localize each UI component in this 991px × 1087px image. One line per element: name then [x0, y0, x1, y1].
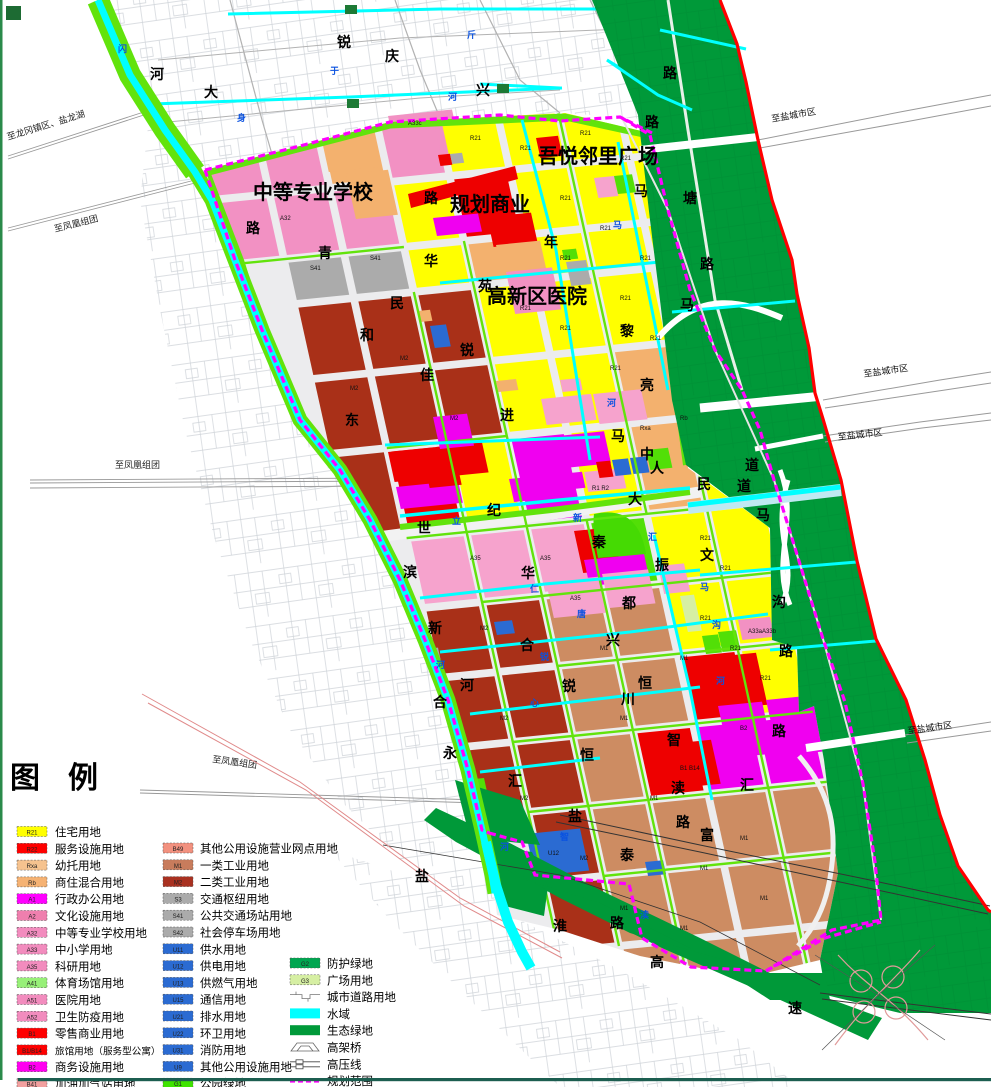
- svg-text:黎: 黎: [620, 323, 634, 339]
- svg-text:A33aA33b: A33aA33b: [748, 629, 777, 635]
- svg-text:年: 年: [544, 234, 558, 250]
- svg-text:B1 B14: B1 B14: [680, 766, 700, 772]
- svg-text:U21: U21: [172, 1015, 184, 1021]
- svg-text:富: 富: [700, 827, 714, 843]
- svg-text:G3: G3: [301, 979, 310, 985]
- svg-text:M1: M1: [700, 866, 709, 872]
- svg-text:河: 河: [716, 675, 725, 686]
- svg-text:B2: B2: [28, 1066, 36, 1072]
- svg-text:至凤凰组团: 至凤凰组团: [115, 459, 160, 470]
- svg-text:R21: R21: [560, 196, 572, 202]
- svg-text:进: 进: [500, 407, 514, 423]
- svg-text:规划商业: 规划商业: [450, 192, 530, 216]
- svg-text:路: 路: [700, 256, 715, 272]
- svg-text:M1: M1: [760, 896, 769, 902]
- svg-text:高架桥: 高架桥: [327, 1041, 362, 1055]
- svg-text:R21: R21: [620, 296, 632, 302]
- svg-text:M1: M1: [620, 716, 629, 722]
- svg-text:路: 路: [676, 814, 691, 830]
- svg-text:恒: 恒: [580, 747, 594, 763]
- svg-text:A33: A33: [27, 948, 38, 954]
- svg-text:S41: S41: [370, 256, 381, 262]
- svg-text:U9: U9: [174, 1065, 182, 1071]
- svg-text:心: 心: [530, 698, 539, 708]
- svg-text:斤: 斤: [467, 29, 476, 40]
- svg-text:河: 河: [607, 397, 616, 408]
- svg-text:M2: M2: [174, 881, 183, 887]
- svg-text:秦: 秦: [591, 534, 607, 550]
- svg-text:M1: M1: [620, 906, 629, 912]
- svg-text:供水用地: 供水用地: [200, 942, 246, 956]
- svg-text:汇: 汇: [508, 773, 522, 789]
- svg-text:川: 川: [620, 691, 635, 707]
- svg-text:速: 速: [788, 1000, 802, 1016]
- svg-text:其他公用设施营业网点用地: 其他公用设施营业网点用地: [200, 842, 338, 856]
- svg-text:住宅用地: 住宅用地: [55, 825, 101, 839]
- svg-text:渎: 渎: [640, 909, 649, 920]
- svg-text:华: 华: [521, 565, 535, 581]
- svg-text:M1: M1: [680, 656, 689, 662]
- svg-text:水域: 水域: [327, 1008, 350, 1021]
- svg-text:A32: A32: [27, 931, 38, 937]
- svg-text:亮: 亮: [640, 377, 654, 393]
- svg-text:M2: M2: [580, 856, 589, 862]
- svg-text:城市道路用地: 城市道路用地: [327, 990, 396, 1004]
- svg-text:医院用地: 医院用地: [55, 993, 101, 1007]
- svg-text:U15: U15: [172, 998, 184, 1004]
- svg-text:锐: 锐: [562, 678, 576, 694]
- svg-text:B49: B49: [173, 847, 184, 853]
- svg-text:A1: A1: [28, 898, 36, 904]
- svg-text:M1: M1: [600, 646, 609, 652]
- svg-text:文化设施用地: 文化设施用地: [55, 909, 124, 923]
- svg-text:商住混合用地: 商住混合用地: [55, 875, 124, 889]
- svg-text:M2: M2: [520, 796, 529, 802]
- svg-text:R21: R21: [520, 306, 532, 312]
- svg-text:中等专业学校: 中等专业学校: [253, 180, 374, 204]
- svg-text:R21: R21: [620, 156, 632, 162]
- svg-text:R1 R2: R1 R2: [592, 486, 610, 492]
- svg-text:汇: 汇: [740, 777, 754, 793]
- svg-text:A35: A35: [27, 965, 38, 971]
- svg-text:科研用地: 科研用地: [55, 959, 101, 973]
- svg-text:合: 合: [520, 637, 535, 653]
- svg-text:新: 新: [428, 620, 442, 636]
- svg-text:锐: 锐: [540, 651, 549, 662]
- svg-text:苑: 苑: [477, 278, 492, 294]
- svg-text:B1: B1: [28, 1032, 36, 1038]
- svg-text:S42: S42: [173, 931, 184, 937]
- svg-text:路: 路: [772, 723, 787, 739]
- svg-text:高新区医院: 高新区医院: [487, 284, 587, 308]
- svg-text:兴: 兴: [476, 82, 490, 98]
- svg-text:二类工业用地: 二类工业用地: [200, 875, 269, 889]
- svg-text:淮: 淮: [553, 918, 567, 934]
- svg-text:青: 青: [318, 245, 332, 261]
- svg-text:G2: G2: [301, 962, 310, 968]
- svg-text:R21: R21: [730, 646, 742, 652]
- svg-text:大: 大: [628, 491, 642, 507]
- svg-text:R21: R21: [640, 256, 652, 262]
- svg-text:沟: 沟: [712, 619, 721, 630]
- svg-text:旅馆用地（服务型公寓）: 旅馆用地（服务型公寓）: [55, 1045, 161, 1057]
- svg-text:智: 智: [666, 732, 681, 748]
- svg-text:通信用地: 通信用地: [200, 994, 246, 1007]
- svg-text:A35: A35: [540, 556, 551, 562]
- svg-text:渎: 渎: [671, 780, 685, 796]
- svg-text:华: 华: [424, 253, 438, 269]
- svg-text:于: 于: [330, 66, 339, 76]
- svg-text:供电用地: 供电用地: [200, 959, 246, 973]
- svg-text:中等专业学校用地: 中等专业学校用地: [55, 926, 147, 940]
- svg-text:高压线: 高压线: [327, 1057, 362, 1071]
- svg-text:交通枢纽用地: 交通枢纽用地: [200, 892, 269, 906]
- svg-text:行政办公用地: 行政办公用地: [55, 892, 124, 906]
- svg-text:Rxa: Rxa: [27, 864, 38, 870]
- svg-text:东: 东: [345, 412, 359, 428]
- svg-text:R21: R21: [560, 256, 572, 262]
- svg-text:汇: 汇: [648, 531, 657, 542]
- svg-text:R21: R21: [560, 326, 572, 332]
- svg-text:M1: M1: [680, 926, 689, 932]
- svg-text:A51: A51: [27, 999, 38, 1005]
- svg-text:广场用地: 广场用地: [327, 973, 373, 987]
- svg-text:M2: M2: [450, 416, 459, 422]
- svg-text:R21: R21: [26, 831, 38, 837]
- svg-text:路: 路: [779, 643, 794, 659]
- svg-text:庆: 庆: [385, 48, 399, 64]
- svg-text:Rb: Rb: [28, 881, 36, 887]
- svg-text:U12: U12: [172, 965, 184, 971]
- svg-text:唐: 唐: [577, 608, 586, 619]
- svg-text:M2: M2: [500, 716, 509, 722]
- svg-text:U22: U22: [172, 1032, 184, 1038]
- svg-text:锐: 锐: [460, 342, 474, 358]
- svg-text:供燃气用地: 供燃气用地: [200, 976, 258, 990]
- svg-text:恒: 恒: [638, 675, 652, 691]
- svg-text:其他公用设施用地: 其他公用设施用地: [200, 1061, 292, 1074]
- svg-text:A35: A35: [470, 556, 481, 562]
- svg-text:R21: R21: [760, 676, 772, 682]
- svg-text:G1: G1: [174, 1082, 183, 1087]
- svg-text:河: 河: [150, 66, 164, 82]
- svg-text:社会停车场用地: 社会停车场用地: [200, 926, 281, 940]
- svg-text:R22: R22: [26, 847, 38, 853]
- svg-text:河: 河: [448, 91, 457, 102]
- svg-text:民: 民: [390, 295, 404, 311]
- svg-text:马: 马: [680, 297, 694, 313]
- svg-text:河: 河: [436, 659, 445, 670]
- svg-text:路: 路: [645, 114, 660, 130]
- svg-text:M1: M1: [650, 796, 659, 802]
- svg-text:U11: U11: [173, 948, 184, 954]
- svg-text:纪: 纪: [487, 502, 501, 518]
- svg-text:S41: S41: [173, 914, 184, 920]
- svg-text:环卫用地: 环卫用地: [200, 1027, 246, 1040]
- svg-text:R21: R21: [580, 131, 592, 137]
- svg-text:卫生防疫用地: 卫生防疫用地: [55, 1010, 124, 1024]
- svg-text:盐: 盐: [415, 868, 429, 884]
- svg-text:新: 新: [573, 512, 582, 523]
- svg-text:路: 路: [246, 220, 261, 236]
- svg-text:道: 道: [745, 457, 759, 473]
- svg-text:马: 马: [700, 582, 709, 592]
- svg-text:Rb: Rb: [680, 416, 688, 422]
- svg-text:M1: M1: [740, 836, 749, 842]
- svg-text:闪: 闪: [118, 43, 127, 54]
- svg-text:商务设施用地: 商务设施用地: [55, 1060, 124, 1074]
- svg-text:R21: R21: [650, 336, 662, 342]
- svg-text:R21: R21: [610, 366, 622, 372]
- svg-text:图例: 图例: [10, 762, 126, 795]
- svg-text:R21: R21: [720, 566, 732, 572]
- svg-text:S3: S3: [174, 897, 182, 903]
- svg-text:仁: 仁: [530, 583, 539, 594]
- svg-text:排水用地: 排水用地: [200, 1010, 246, 1024]
- svg-text:R21: R21: [520, 146, 532, 152]
- svg-text:马: 马: [634, 183, 648, 199]
- svg-text:塘: 塘: [683, 190, 697, 206]
- svg-text:A32: A32: [280, 216, 291, 222]
- svg-text:R21: R21: [700, 536, 712, 542]
- svg-text:S41: S41: [310, 266, 321, 272]
- svg-text:马: 马: [613, 220, 622, 230]
- svg-text:B2: B2: [740, 726, 748, 732]
- svg-text:路: 路: [424, 190, 439, 206]
- svg-text:智: 智: [560, 831, 569, 842]
- svg-text:消防用地: 消防用地: [200, 1043, 246, 1057]
- svg-text:R21: R21: [600, 226, 612, 232]
- svg-text:M2: M2: [400, 356, 409, 362]
- svg-text:B1/B14: B1/B14: [22, 1049, 42, 1055]
- svg-text:佳: 佳: [420, 367, 434, 383]
- svg-text:Rxa: Rxa: [640, 426, 651, 432]
- svg-text:合: 合: [433, 694, 448, 710]
- svg-text:滨: 滨: [403, 564, 417, 580]
- svg-text:身: 身: [237, 112, 246, 123]
- svg-text:A52: A52: [27, 1015, 38, 1021]
- svg-text:盐: 盐: [568, 808, 582, 824]
- svg-text:吾悦邻里广场: 吾悦邻里广场: [538, 144, 658, 168]
- svg-text:锐: 锐: [337, 34, 351, 50]
- svg-text:民: 民: [697, 476, 711, 492]
- svg-text:M1: M1: [174, 864, 183, 870]
- svg-text:体育场馆用地: 体育场馆用地: [55, 976, 124, 990]
- svg-text:永: 永: [442, 745, 458, 761]
- svg-text:U13: U13: [172, 981, 184, 987]
- svg-text:道: 道: [737, 478, 751, 494]
- svg-text:和: 和: [360, 327, 374, 343]
- svg-text:R21: R21: [700, 616, 712, 622]
- svg-text:公共交通场站用地: 公共交通场站用地: [200, 909, 292, 923]
- svg-text:A41: A41: [27, 982, 38, 988]
- svg-text:振: 振: [655, 557, 669, 573]
- svg-text:M2: M2: [480, 626, 489, 632]
- svg-text:U31: U31: [172, 1049, 184, 1055]
- svg-text:泰: 泰: [619, 847, 635, 863]
- svg-text:河: 河: [500, 841, 509, 852]
- svg-text:B41: B41: [27, 1083, 38, 1087]
- svg-text:都: 都: [621, 595, 636, 611]
- svg-text:中小学用地: 中小学用地: [55, 943, 113, 957]
- svg-text:M2: M2: [350, 386, 359, 392]
- svg-text:U12: U12: [548, 851, 560, 857]
- svg-text:A2: A2: [28, 915, 36, 921]
- svg-text:R21: R21: [470, 136, 482, 142]
- svg-text:立: 立: [452, 515, 461, 526]
- svg-text:A33c: A33c: [408, 121, 422, 127]
- svg-text:马: 马: [756, 507, 770, 523]
- svg-text:防护绿地: 防护绿地: [327, 957, 373, 971]
- svg-text:服务设施用地: 服务设施用地: [55, 842, 124, 856]
- svg-text:路: 路: [663, 65, 678, 81]
- svg-text:零售商业用地: 零售商业用地: [55, 1027, 124, 1041]
- svg-text:河: 河: [460, 677, 474, 693]
- svg-text:生态绿地: 生态绿地: [327, 1024, 373, 1038]
- svg-text:A35: A35: [570, 596, 581, 602]
- svg-text:路: 路: [610, 915, 625, 931]
- svg-text:人: 人: [650, 460, 665, 476]
- svg-text:高: 高: [650, 954, 664, 970]
- svg-text:一类工业用地: 一类工业用地: [200, 858, 269, 872]
- svg-text:大: 大: [204, 84, 218, 100]
- svg-text:幼托用地: 幼托用地: [55, 859, 101, 873]
- svg-text:世: 世: [417, 520, 431, 536]
- svg-text:马: 马: [611, 428, 625, 444]
- svg-text:文: 文: [700, 547, 715, 563]
- svg-text:沟: 沟: [772, 594, 786, 610]
